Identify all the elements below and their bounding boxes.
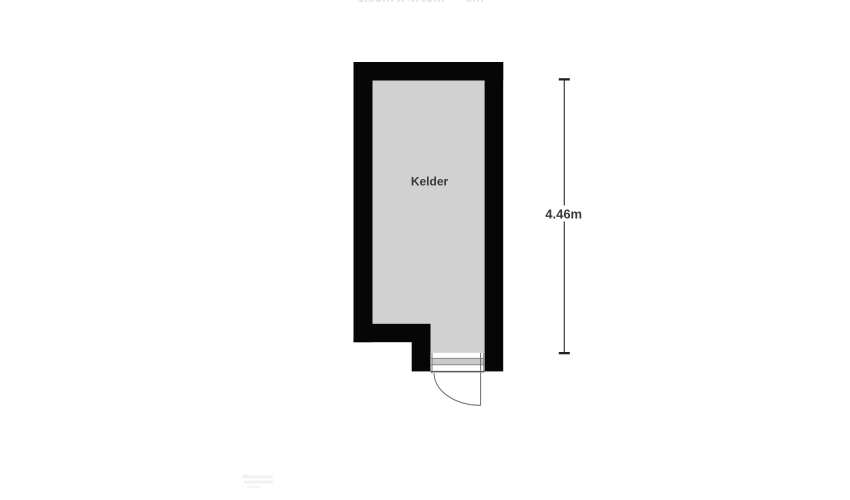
svg-text:Kelder: Kelder [411, 175, 449, 189]
svg-text:1.85m: 1.85m [357, 0, 394, 5]
svg-text:x 4.46m: x 4.46m [397, 0, 445, 5]
svg-text:8m²: 8m² [465, 0, 489, 5]
svg-text:4.46m: 4.46m [545, 207, 582, 222]
